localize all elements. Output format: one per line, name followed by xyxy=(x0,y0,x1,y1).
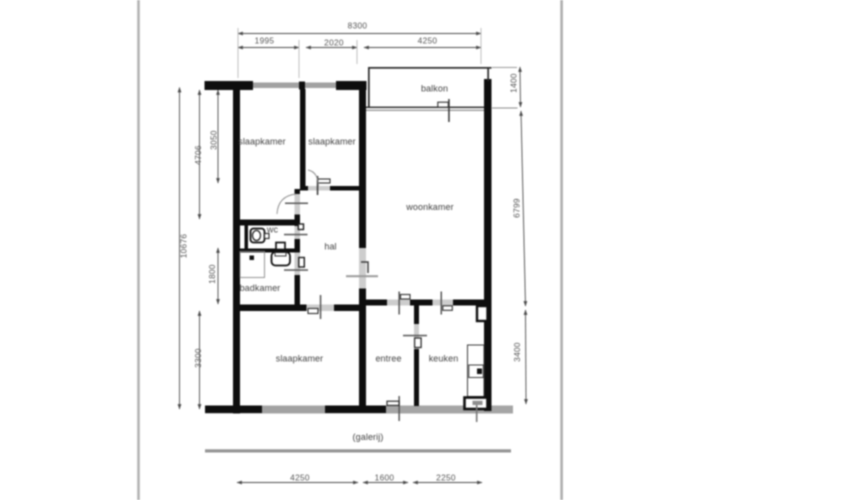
svg-text:4706: 4706 xyxy=(193,145,203,165)
svg-text:6799: 6799 xyxy=(512,198,522,218)
svg-text:woonkamer: woonkamer xyxy=(405,202,453,212)
svg-text:3300: 3300 xyxy=(193,348,203,368)
svg-text:8300: 8300 xyxy=(348,21,368,31)
svg-text:slaapkamer: slaapkamer xyxy=(238,137,286,147)
svg-text:wc: wc xyxy=(266,225,279,235)
svg-text:entree: entree xyxy=(375,354,401,364)
svg-text:(galerij): (galerij) xyxy=(353,432,384,442)
svg-text:balkon: balkon xyxy=(421,84,448,94)
svg-text:slaapkamer: slaapkamer xyxy=(276,354,324,364)
svg-text:3400: 3400 xyxy=(512,342,522,362)
svg-text:1800: 1800 xyxy=(207,264,217,284)
svg-text:2250: 2250 xyxy=(436,473,456,483)
svg-text:1995: 1995 xyxy=(255,36,275,46)
svg-text:2020: 2020 xyxy=(324,38,344,48)
svg-text:slaapkamer: slaapkamer xyxy=(308,137,356,147)
svg-text:1400: 1400 xyxy=(509,73,519,93)
svg-text:10676: 10676 xyxy=(179,234,189,259)
svg-text:1600: 1600 xyxy=(375,473,395,483)
svg-text:keuken: keuken xyxy=(429,354,459,364)
svg-text:badkamer: badkamer xyxy=(240,283,281,293)
svg-text:hal: hal xyxy=(324,242,336,252)
svg-text:4250: 4250 xyxy=(418,36,438,46)
svg-text:3050: 3050 xyxy=(209,130,219,150)
svg-text:4250: 4250 xyxy=(290,473,310,483)
